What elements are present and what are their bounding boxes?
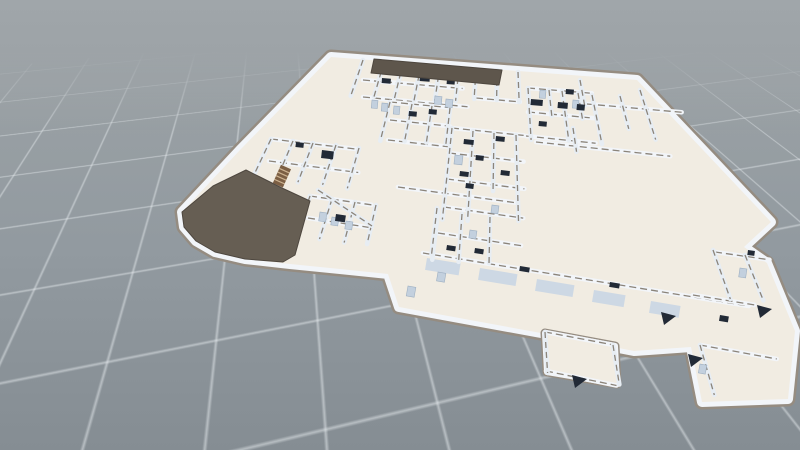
3d-floorplan-viewport[interactable] <box>0 0 800 450</box>
floorplan-model <box>0 0 800 450</box>
